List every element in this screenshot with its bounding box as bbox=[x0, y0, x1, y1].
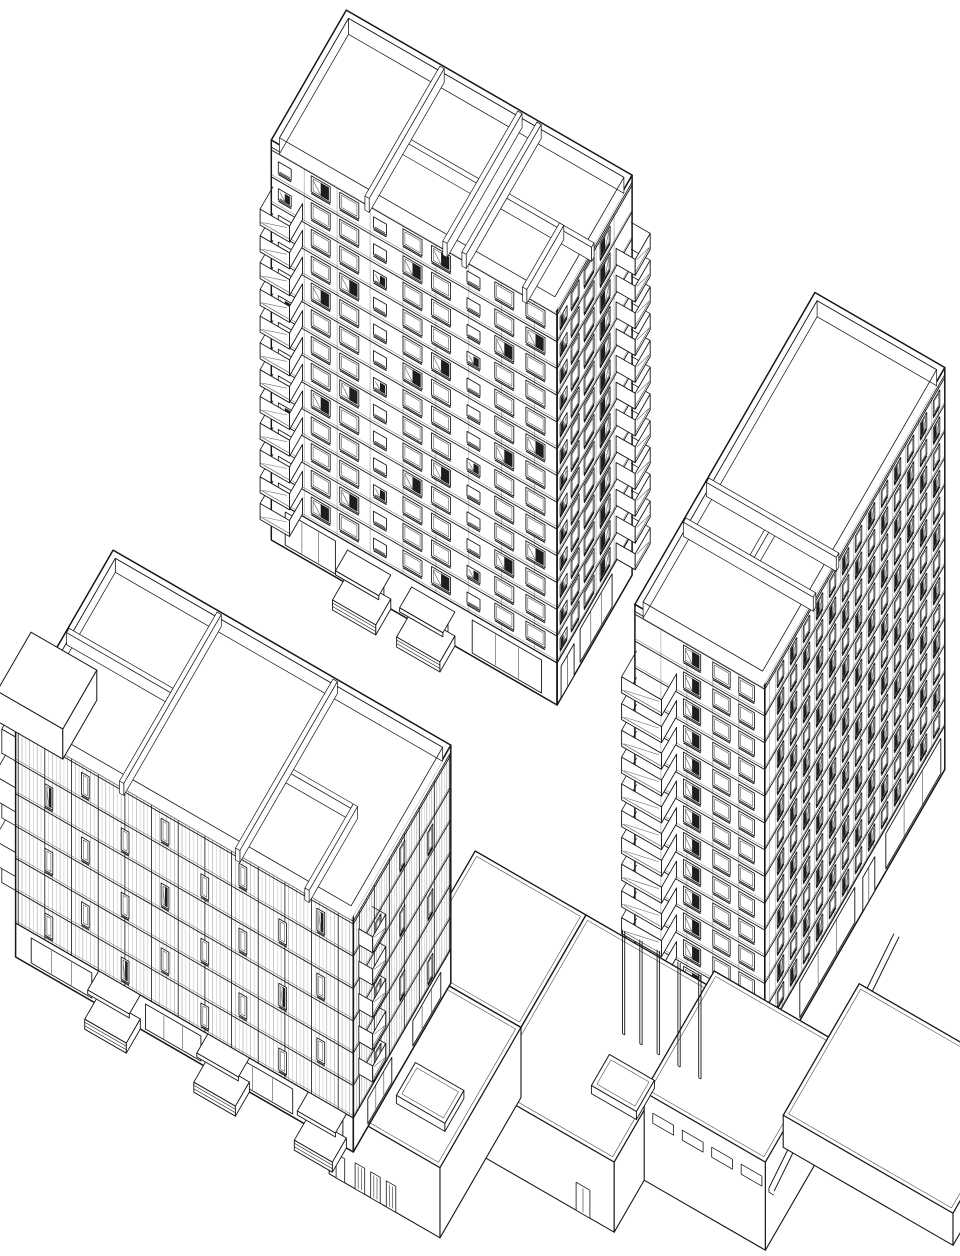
axonometric-drawing bbox=[0, 0, 960, 1256]
drawing-canvas bbox=[0, 0, 960, 1256]
